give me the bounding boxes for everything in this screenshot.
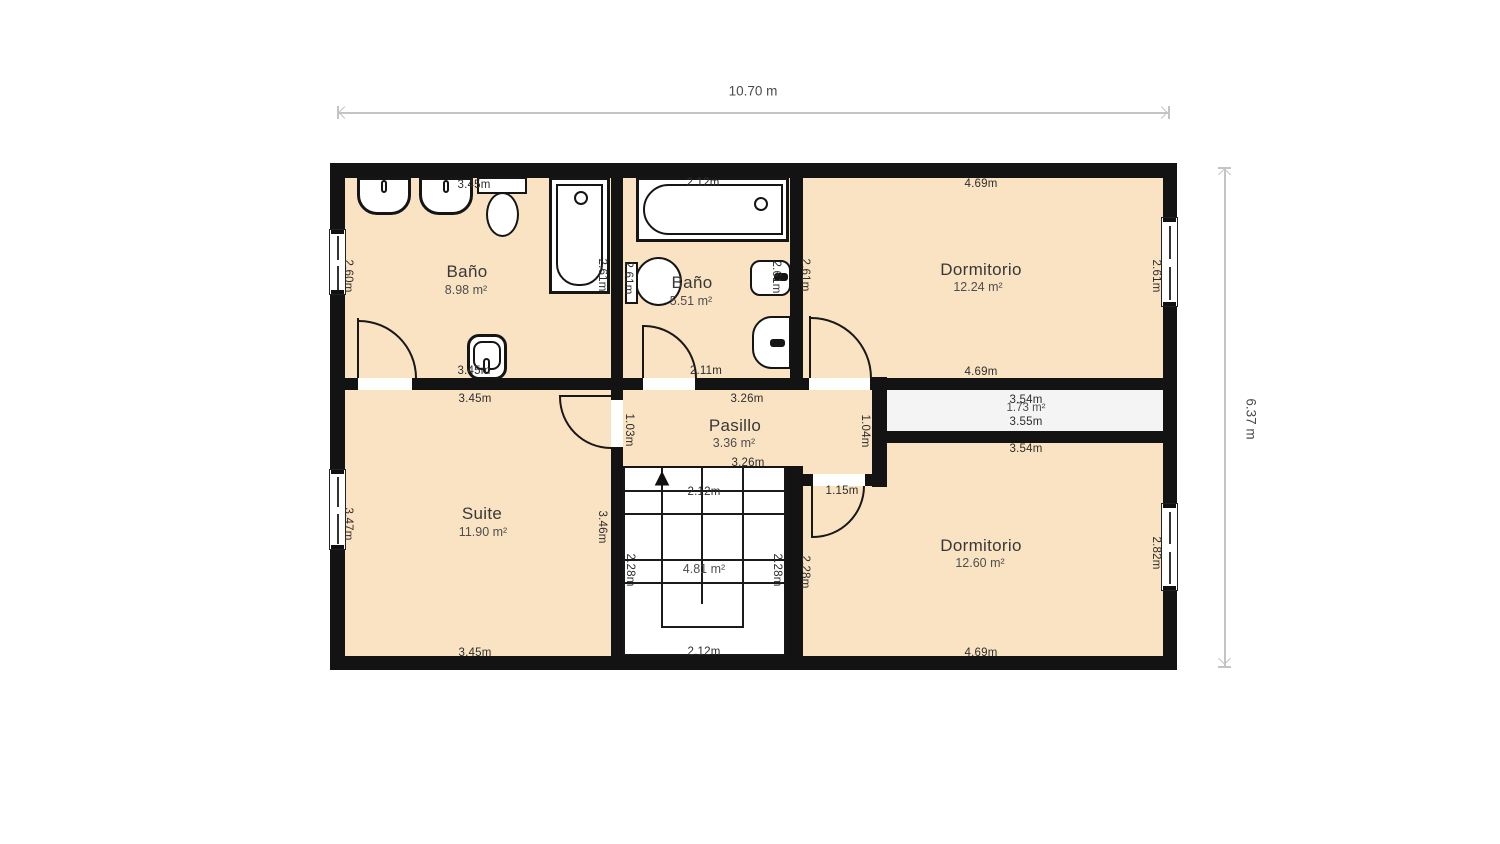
door-opening-bano2 [640,378,698,390]
dim-bano1-left: 2.60m [342,260,354,293]
total-width-label: 10.70 m [729,84,778,99]
dim-escalera-left: 2.28m [624,554,636,587]
dim-armario-top: 3.54m [1010,394,1043,406]
door-opening-dormitorio1 [806,378,873,390]
dim-pasillo-bottom: 3.26m [732,457,765,469]
dim-pasillo-top: 3.26m [731,393,764,405]
dim-dormitorio1-right: 2.61m [1150,260,1162,293]
room-area-dormitorio1: 12.24 m² [953,280,1002,294]
drain-symbol [574,191,588,205]
dim-suite-left: 3.47m [342,508,354,541]
dim-bano2-bottom: 2.11m [690,365,722,377]
dim-bano1-right: 2.61m [596,259,608,292]
dim-dormitorio2-bottom: 4.69m [965,647,998,659]
bidet-spout-symbol [770,339,785,347]
dim-escalera-top: 2.12m [688,486,721,498]
stairs-up-arrow-icon: ▲ [650,466,675,491]
arrow-left-icon [338,106,351,119]
dim-escalera-right: 2.28m [771,554,783,587]
arrow-up-icon [1218,168,1231,181]
room-area-pasillo: 3.36 m² [713,436,755,450]
window-dormitorio1 [1161,217,1178,307]
dim-dormitorio1-left: 2.61m [799,259,811,292]
dim-pasillo-right: 1.04m [859,415,871,448]
door-opening-suite [611,397,623,450]
room-area-bano2: 5.51 m² [670,294,712,308]
dim-bano2-right: 2.61m [770,261,782,294]
room-area-escalera: 4.81 m² [683,562,725,576]
room-area-suite: 11.90 m² [459,525,507,539]
dim-dormitorio2-right: 2.82m [1150,537,1162,570]
dim-armario-bottom: 3.55m [1010,416,1043,428]
dim-suite-top: 3.45m [459,393,492,405]
total-height-label: 6.37 m [1244,398,1259,439]
dim-bano1-bottom: 3.45m [458,365,491,377]
dim-escalera-bottom: 2.12m [688,646,721,658]
room-name-bano1: Baño [447,262,488,282]
room-area-bano1: 8.98 m² [445,283,487,297]
arrow-down-icon [1218,652,1231,665]
room-name-suite: Suite [462,504,502,524]
dim-bano1-top: 3.45m [458,179,491,191]
wall-pasillo-armario [872,377,887,487]
dimension-line-top [337,112,1170,114]
faucet-symbol [381,180,387,193]
faucet-symbol [443,180,449,193]
dimension-tick [1168,106,1170,119]
dimension-line-right [1224,167,1226,667]
dim-suite-bottom: 3.45m [459,647,492,659]
room-area-dormitorio2: 12.60 m² [955,556,1004,570]
arrow-right-icon [1155,106,1168,119]
dim-dormitorio2-top: 3.54m [1010,443,1043,455]
dim-suite-right: 3.46m [596,511,608,544]
wall-stairs-post [786,466,803,486]
room-name-pasillo: Pasillo [709,416,761,436]
dim-bano2-top: 2.12m [687,177,720,189]
dim-pasillo-left: 1.03m [623,414,635,447]
room-name-dormitorio2: Dormitorio [940,536,1021,556]
dim-dormitorio1-top: 4.69m [965,178,998,190]
room-name-bano2: Baño [672,273,713,293]
wall-armario-bottom [887,431,1163,443]
dim-dormitorio1-bottom: 4.69m [965,366,998,378]
dimension-tick [1218,666,1231,668]
dim-bano2-left: 2.61m [622,262,634,295]
dim-dormitorio2-door: 1.15m [826,485,859,497]
floor-plan-canvas: 10.70 m 6.37 m ▲ [0,0,1500,844]
room-name-dormitorio1: Dormitorio [940,260,1021,280]
door-opening-bano1 [355,378,415,390]
dim-dormitorio2-left: 2.28m [799,556,811,589]
window-dormitorio2 [1161,503,1178,591]
toilet-bowl-symbol [486,192,519,237]
drain-symbol [754,197,768,211]
